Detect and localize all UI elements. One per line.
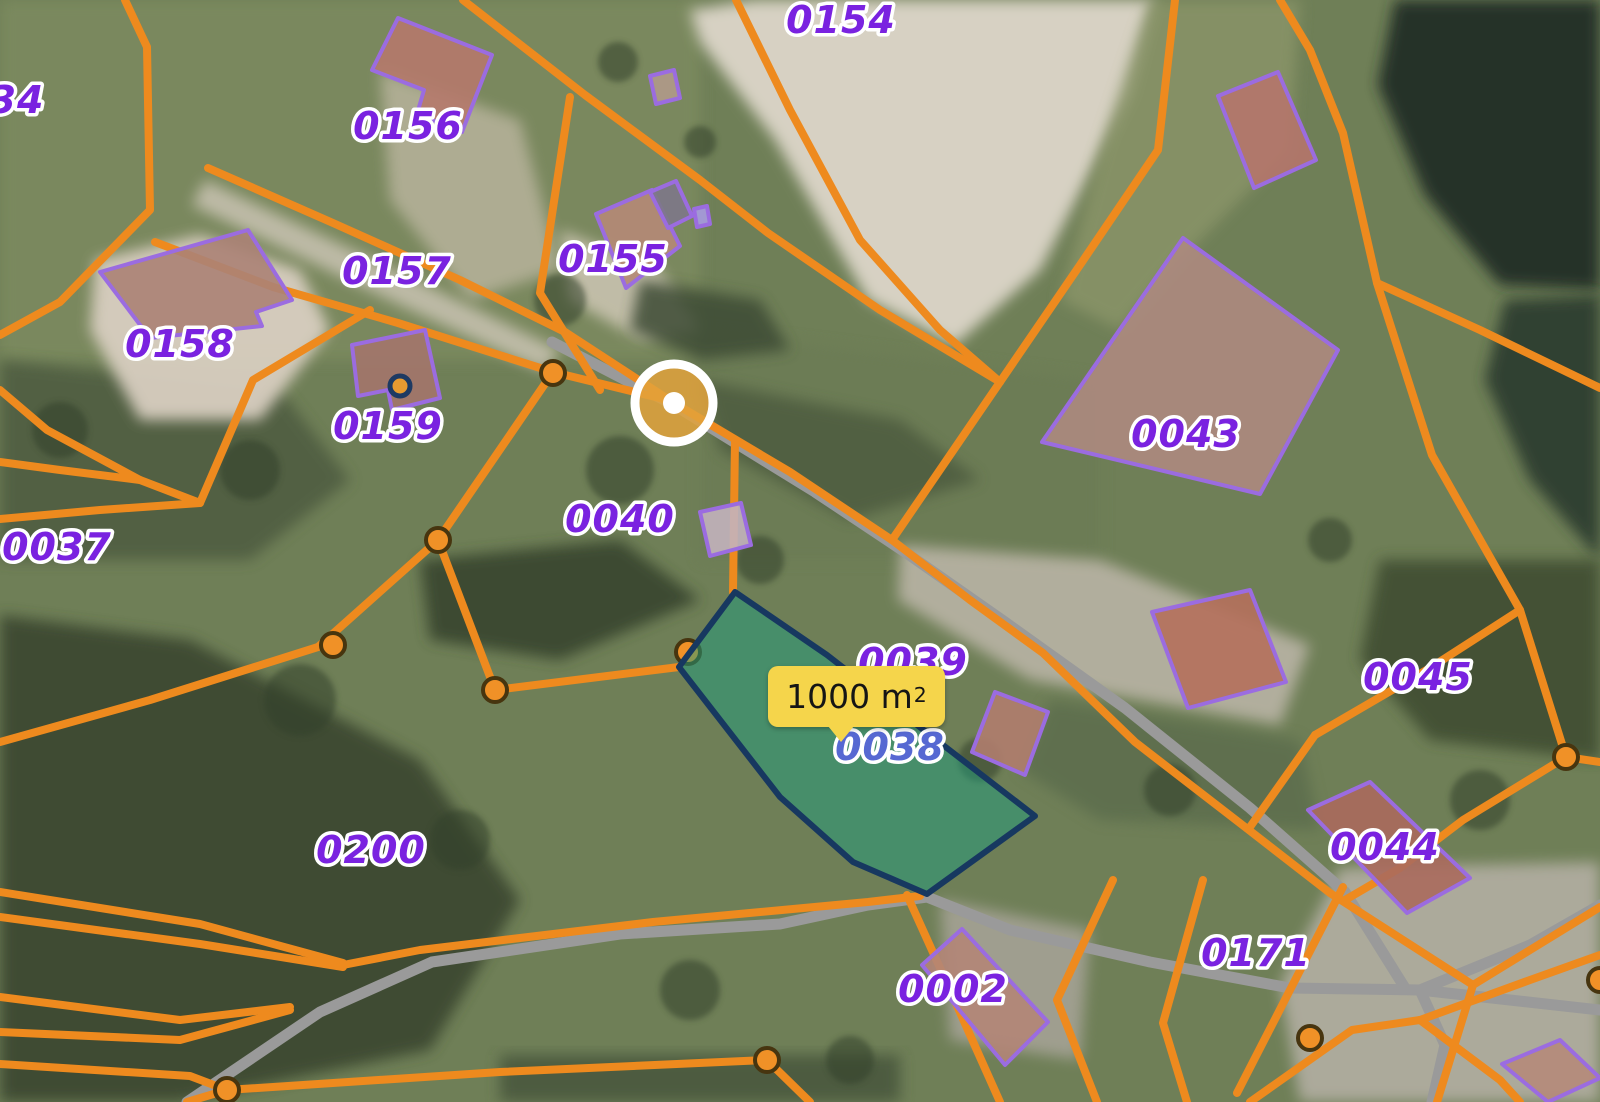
boundary-vertex-dot (1554, 745, 1578, 769)
tree-blob (684, 126, 716, 158)
parcel-label-0043: 0043 (1131, 412, 1241, 456)
point-marker-dot (390, 376, 410, 396)
building-outline (694, 206, 710, 227)
boundary-vertex-dot (321, 633, 345, 657)
cadastral-map[interactable]: 0154015601570158015901550040003700430039… (0, 0, 1600, 1102)
building-outline (700, 503, 751, 556)
parcel-label-0157: 0157 (342, 249, 452, 293)
boundary-vertex-dot (755, 1048, 779, 1072)
parcel-label-0159: 0159 (333, 404, 443, 448)
tree-blob (220, 440, 280, 500)
parcel-label-0044: 0044 (1330, 825, 1440, 869)
tree-blob (586, 436, 654, 504)
parcel-label-0045: 0045 (1363, 655, 1473, 699)
boundary-vertex-dot (426, 528, 450, 552)
building-outline (650, 70, 680, 104)
tree-blob (660, 960, 720, 1020)
selected-point-marker[interactable] (635, 364, 713, 442)
parcel-label-0171: 0171 (1201, 931, 1311, 975)
tree-blob (264, 664, 336, 736)
tree-blob (1308, 518, 1352, 562)
parcel-label-0037: 0037 (2, 525, 112, 569)
parcel-label-0156: 0156 (353, 104, 463, 148)
marker-center-dot (663, 392, 685, 414)
boundary-vertex-dot (483, 678, 507, 702)
parcel-label-0002: 0002 (898, 967, 1008, 1011)
boundary-vertex-dot (1298, 1026, 1322, 1050)
parcel-label-0200: 0200 (316, 828, 426, 872)
parcel-label-0034: 34 (0, 78, 44, 122)
parcel-label-0158: 0158 (125, 322, 235, 366)
area-value: 1000 m (786, 677, 913, 716)
boundary-vertex-dot (215, 1078, 239, 1102)
parcel-label-0040: 0040 (565, 497, 675, 541)
boundary-vertex-dot (1588, 968, 1600, 992)
tree-blob (826, 1036, 874, 1084)
parcel-label-0154: 0154 (786, 0, 896, 42)
parcel-label-0155: 0155 (558, 237, 668, 281)
tree-blob (430, 810, 490, 870)
tree-blob (598, 42, 638, 82)
area-exponent: 2 (914, 683, 927, 707)
boundary-vertex-dot (541, 361, 565, 385)
area-tooltip: 1000 m2 (768, 666, 945, 727)
tooltip-arrow (828, 726, 854, 742)
map-canvas[interactable]: 0154015601570158015901550040003700430039… (0, 0, 1600, 1102)
